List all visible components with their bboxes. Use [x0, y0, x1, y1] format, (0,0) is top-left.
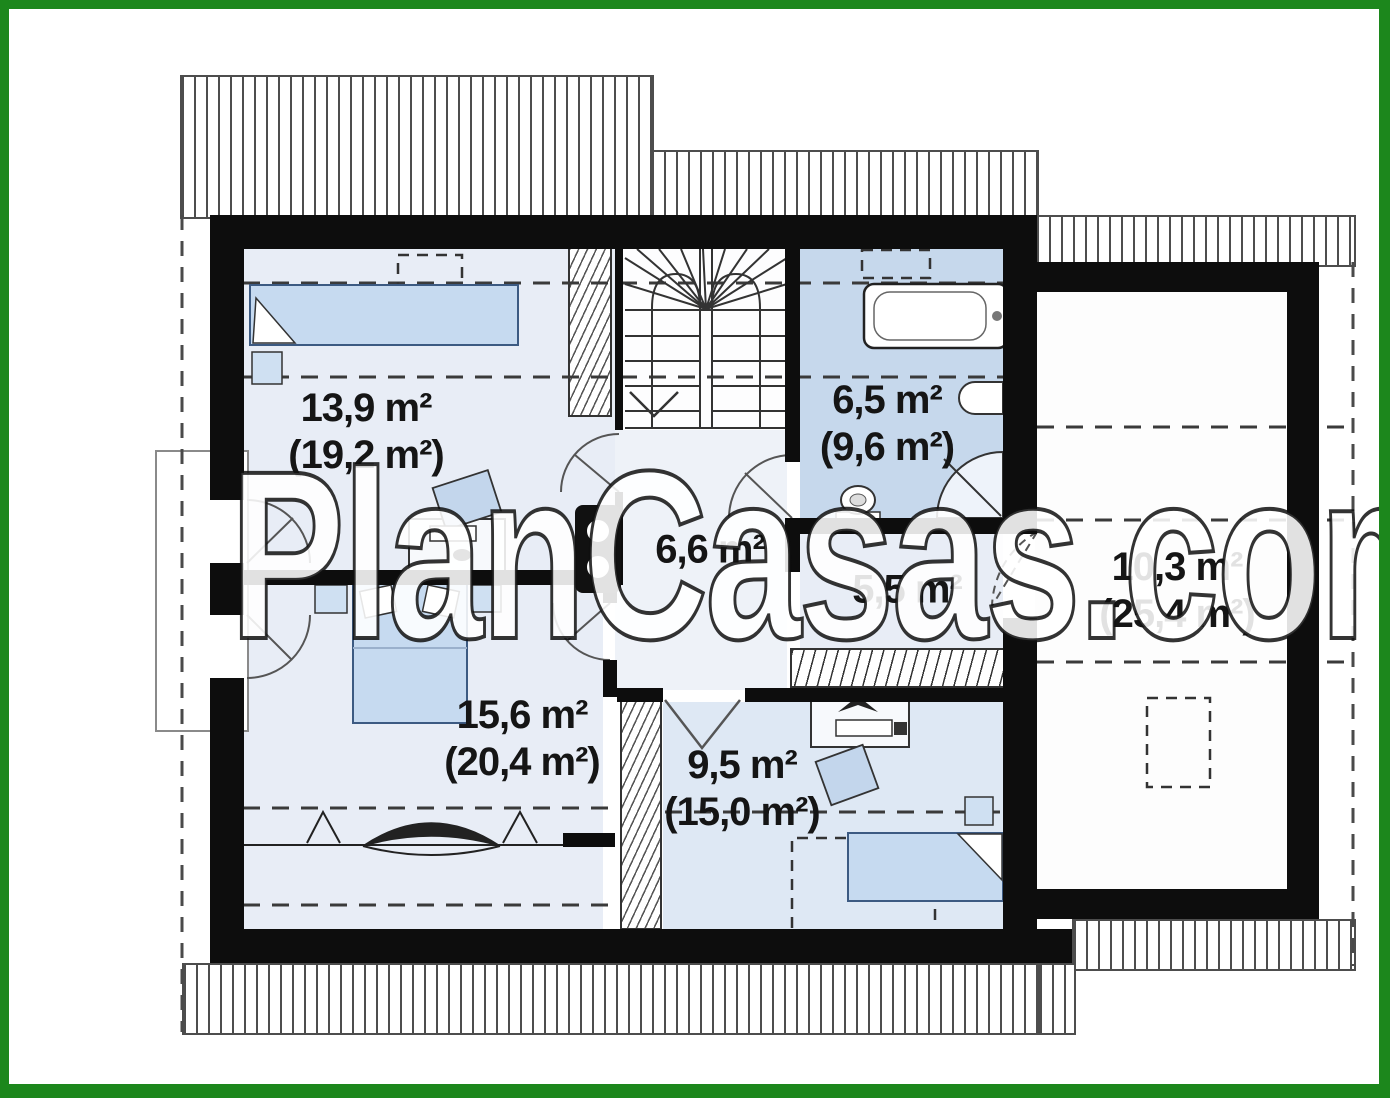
room-area: 6,6 m² [655, 526, 765, 573]
wall-bedroom2-stub [563, 833, 615, 847]
desk-chair-top-left [430, 470, 501, 561]
staircase [625, 249, 787, 428]
room-label-bedroom-bottom-right: 9,5 m² (15,0 m²) [664, 742, 820, 836]
nightstand [315, 585, 347, 613]
roof-window-lens [363, 823, 500, 855]
chimney-flue [584, 553, 612, 581]
mouse [453, 549, 471, 561]
wall-bedroom2-right-b [603, 660, 617, 697]
wall-storage-right [1287, 262, 1319, 919]
wall-bottom [210, 929, 1072, 963]
desk-accessory [894, 722, 907, 735]
room-area: 5,5 m² [852, 566, 962, 613]
floor-plan: 13,9 m² (19,2 m²) 6,5 m² (9,6 m²) 6,6 m²… [0, 0, 1390, 1098]
wall-bathroom-left [785, 248, 800, 462]
room-area: 15,6 m² [444, 692, 600, 739]
wall-top [210, 215, 1037, 249]
door-hall-to-bathroom [729, 455, 792, 518]
wall-right-lower [1003, 618, 1037, 963]
door-balcony-bedroom-top-left [247, 500, 310, 563]
nightstand [965, 797, 993, 825]
room-floor-area: (15,0 m²) [664, 789, 820, 836]
desk-area-bottom-right [816, 696, 907, 805]
door-closet-to-storage [992, 532, 1037, 606]
wall-bedroom3-top-b [745, 688, 1037, 702]
wall-stairs-left [615, 248, 623, 430]
wall-bedroom3-top-a [617, 688, 663, 702]
pillow [360, 585, 397, 618]
nightstand [471, 585, 501, 612]
room-label-bathroom: 6,5 m² (9,6 m²) [820, 377, 954, 471]
pillow [422, 585, 459, 618]
chimney-block [575, 505, 621, 593]
nightstand [252, 352, 282, 384]
wall-storage-top [1035, 262, 1319, 292]
room-floor-area: (25,4 m²) [1099, 591, 1255, 638]
chair [816, 745, 879, 805]
washbasin [959, 382, 1003, 414]
room-floor-area: (9,6 m²) [820, 424, 954, 471]
wall-left-lower [210, 678, 244, 963]
room-label-hall: 6,6 m² [655, 526, 765, 573]
stair-direction-arrow [630, 392, 678, 416]
door-hall-to-bedroom-bottom-right [665, 700, 740, 748]
wall-divider-left-rooms [243, 570, 623, 585]
roof-slope-mark [503, 812, 537, 843]
room-floor-area: (20,4 m²) [444, 739, 600, 786]
faucet-icon [992, 311, 1002, 321]
door-balcony-bedroom-bottom-left [247, 615, 310, 678]
bathtub [864, 284, 1008, 348]
wall-storage-bottom [1035, 889, 1319, 919]
room-area: 13,9 m² [288, 385, 444, 432]
room-area: 6,5 m² [820, 377, 954, 424]
room-label-bedroom-bottom-left: 15,6 m² (20,4 m²) [444, 692, 600, 786]
wall-right-upper [1003, 215, 1037, 530]
room-label-bedroom-top-left: 13,9 m² (19,2 m²) [288, 385, 444, 479]
wall-left-upper [210, 215, 244, 500]
room-floor-area: (19,2 m²) [288, 432, 444, 479]
wall-bathroom-bottom [787, 518, 1037, 534]
door-hall-to-bedroom-bottom-left [553, 603, 610, 660]
chimney-flue [584, 517, 612, 545]
room-area: 9,5 m² [664, 742, 820, 789]
room-label-attic-storage: 10,3 m² (25,4 m²) [1099, 544, 1255, 638]
single-bed-top-left [250, 285, 518, 384]
room-label-closet: 5,5 m² [852, 566, 962, 613]
roof-slope-mark [307, 812, 340, 843]
keyboard [836, 720, 892, 736]
keyboard [430, 526, 476, 541]
wall-left-pier [210, 563, 244, 615]
door-hall-to-bedroom-top-left [561, 434, 619, 492]
room-area: 10,3 m² [1099, 544, 1255, 591]
